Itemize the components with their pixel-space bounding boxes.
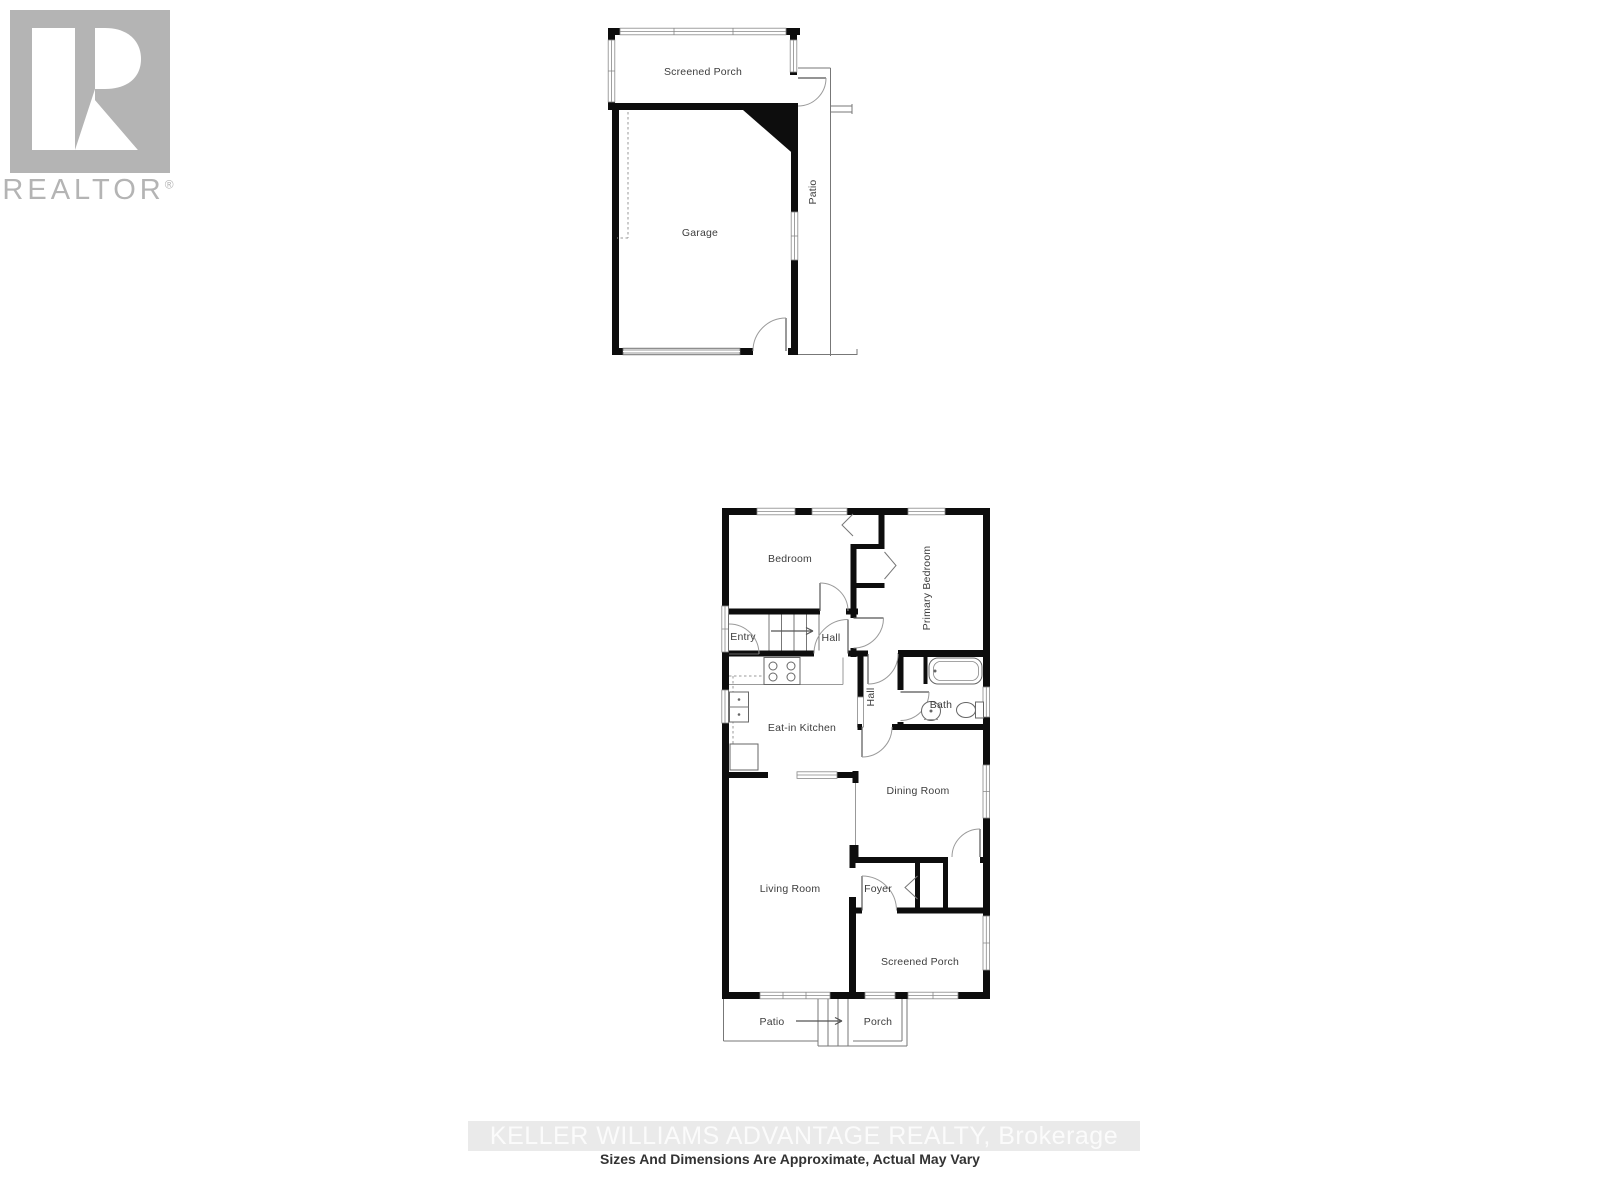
window — [865, 992, 895, 999]
realtor-r-icon — [10, 10, 172, 175]
window — [790, 40, 797, 72]
room-label-hall-lower: Hall — [865, 688, 877, 707]
door-swing — [854, 618, 884, 648]
room-label-patio: Patio — [807, 180, 819, 205]
window — [620, 28, 786, 35]
disclaimer-text: Sizes And Dimensions Are Approximate, Ac… — [480, 1151, 1100, 1167]
room-label-hall-upper: Hall — [822, 632, 841, 644]
gate-icon — [830, 104, 852, 114]
window — [812, 508, 847, 515]
room-label-primary-bedroom: Primary Bedroom — [921, 546, 933, 631]
stairs-icon — [769, 615, 819, 651]
room-label-garage: Garage — [682, 227, 718, 239]
interior-walls — [722, 508, 987, 995]
door-swing — [820, 583, 848, 611]
window — [908, 992, 958, 999]
window — [608, 40, 615, 102]
chamfer-corner — [735, 103, 798, 158]
kitchen-fixtures — [729, 658, 843, 771]
room-label-bath: Bath — [930, 699, 952, 711]
door-swing — [753, 318, 786, 351]
realtor-logo: REALTOR® — [10, 10, 172, 180]
window — [797, 772, 837, 779]
room-labels: Bedroom Primary Bedroom Entry Hall Eat-i… — [730, 546, 959, 1028]
room-label-patio: Patio — [760, 1016, 785, 1028]
window — [983, 916, 990, 970]
bath-fixtures — [922, 658, 984, 721]
window — [760, 992, 830, 999]
garage-patio-outline — [798, 68, 857, 356]
stairs-icon — [796, 999, 848, 1046]
room-label-entry: Entry — [730, 631, 756, 643]
room-label-screened-porch: Screened Porch — [664, 66, 742, 78]
window — [757, 508, 795, 515]
room-label-dining-room: Dining Room — [887, 785, 950, 797]
room-label-living-room: Living Room — [760, 883, 821, 895]
bathtub-icon — [929, 658, 982, 684]
room-label-bedroom: Bedroom — [768, 553, 812, 565]
stove-icon — [764, 658, 800, 685]
main-floor-plan: Bedroom Primary Bedroom Entry Hall Eat-i… — [712, 495, 1004, 1060]
registered-mark: ® — [165, 177, 174, 191]
window — [791, 212, 798, 260]
refrigerator-icon — [730, 744, 758, 770]
kitchen-sink-icon — [730, 692, 749, 722]
brokerage-watermark: KELLER WILLIAMS ADVANTAGE REALTY, Broker… — [468, 1121, 1140, 1151]
garage-floor-plan: Screened Porch Garage Patio — [585, 20, 865, 365]
door-swing — [862, 727, 892, 757]
room-label-foyer: Foyer — [864, 883, 892, 895]
door-swing — [868, 654, 898, 684]
realtor-text: REALTOR — [2, 174, 164, 206]
door-swing — [798, 78, 826, 106]
door-swing — [952, 829, 980, 857]
window — [983, 765, 990, 818]
room-label-eat-in-kitchen: Eat-in Kitchen — [768, 722, 836, 734]
room-label-screened-porch: Screened Porch — [881, 956, 959, 968]
window — [722, 606, 729, 652]
direction-arrow-icon — [796, 1018, 842, 1025]
window — [722, 690, 729, 723]
window — [908, 508, 945, 515]
garage-door-icon — [623, 348, 740, 355]
realtor-wordmark: REALTOR® — [2, 174, 174, 207]
toilet-icon — [957, 702, 984, 718]
room-label-porch: Porch — [864, 1016, 892, 1028]
